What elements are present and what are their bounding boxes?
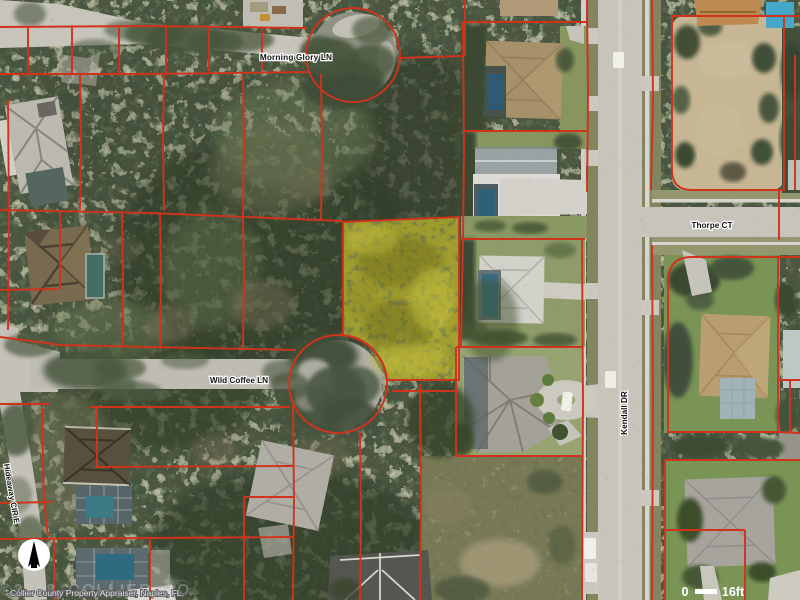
svg-text:Kendall DR: Kendall DR	[620, 391, 629, 435]
svg-text:0: 0	[682, 585, 689, 599]
svg-text:Collier County Property Apprai: Collier County Property Appraiser, Naple…	[10, 588, 184, 598]
svg-text:Wild Coffee LN: Wild Coffee LN	[210, 376, 268, 385]
svg-text:Thorpe CT: Thorpe CT	[692, 221, 733, 230]
svg-text:16ft: 16ft	[722, 585, 745, 599]
svg-text:Morning Glory LN: Morning Glory LN	[260, 53, 332, 62]
